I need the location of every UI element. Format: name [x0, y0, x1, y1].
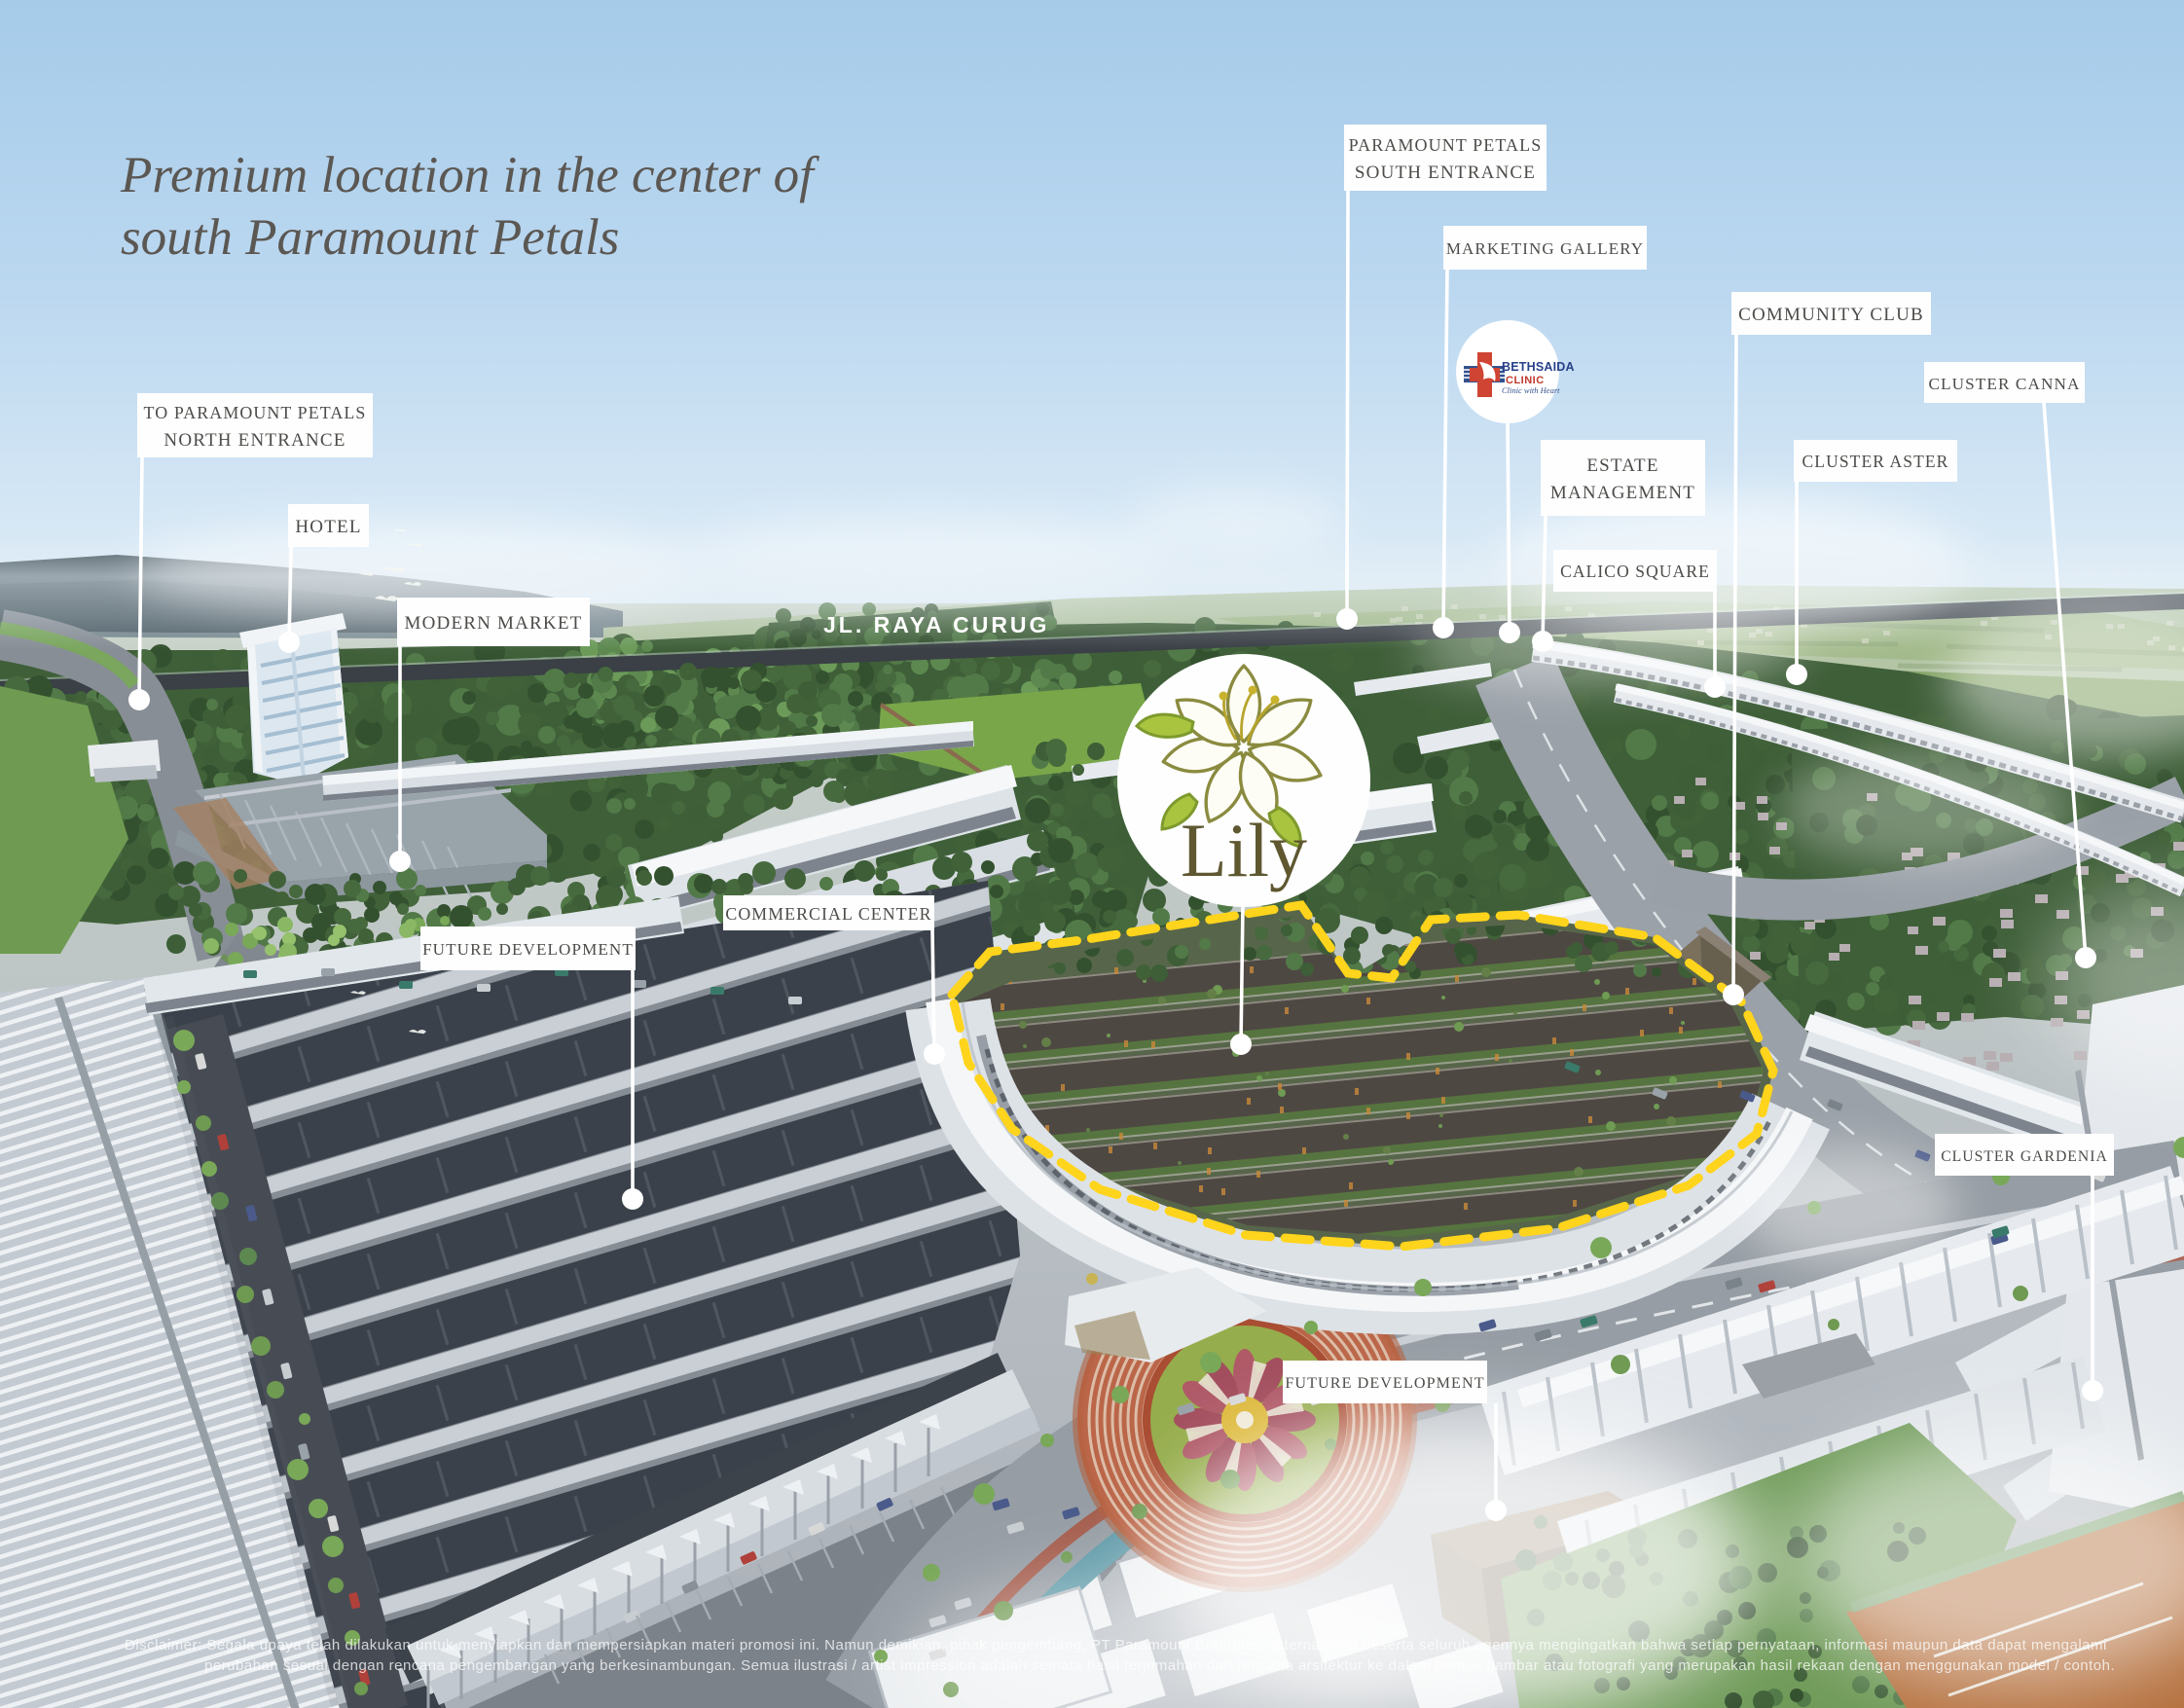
svg-text:ESTATE: ESTATE	[1586, 455, 1658, 476]
svg-text:CLUSTER CANNA: CLUSTER CANNA	[1928, 375, 2080, 393]
svg-text:CLUSTER GARDENIA: CLUSTER GARDENIA	[1941, 1148, 2108, 1165]
svg-text:Disclaimer: Segala upaya telah: Disclaimer: Segala upaya telah dilakukan…	[125, 1637, 2107, 1653]
svg-text:Clinic with Heart: Clinic with Heart	[1502, 385, 1560, 395]
svg-text:MARKETING GALLERY: MARKETING GALLERY	[1446, 239, 1644, 258]
svg-text:PARAMOUNT PETALS: PARAMOUNT PETALS	[1349, 135, 1543, 155]
svg-text:COMMUNITY CLUB: COMMUNITY CLUB	[1738, 305, 1924, 325]
svg-text:Premium location in the center: Premium location in the center of	[120, 147, 819, 203]
svg-text:Lily: Lily	[1181, 808, 1307, 892]
svg-text:NORTH ENTRANCE: NORTH ENTRANCE	[164, 430, 346, 451]
svg-text:CALICO SQUARE: CALICO SQUARE	[1560, 562, 1710, 581]
svg-text:FUTURE DEVELOPMENT: FUTURE DEVELOPMENT	[1285, 1375, 1484, 1392]
svg-text:JL. RAYA CURUG: JL. RAYA CURUG	[823, 612, 1049, 637]
svg-text:MANAGEMENT: MANAGEMENT	[1550, 483, 1695, 503]
svg-text:MODERN MARKET: MODERN MARKET	[405, 613, 583, 634]
svg-text:TO PARAMOUNT PETALS: TO PARAMOUNT PETALS	[144, 403, 367, 422]
svg-text:perubahan sesuai dengan rencan: perubahan sesuai dengan rencana pengemba…	[204, 1657, 2115, 1674]
svg-text:COMMERCIAL CENTER: COMMERCIAL CENTER	[725, 904, 931, 924]
svg-text:CLUSTER ASTER: CLUSTER ASTER	[1802, 452, 1949, 471]
svg-text:SOUTH ENTRANCE: SOUTH ENTRANCE	[1355, 163, 1536, 183]
svg-text:HOTEL: HOTEL	[295, 517, 361, 537]
svg-text:BETHSAIDA: BETHSAIDA	[1502, 360, 1575, 374]
svg-text:south Paramount Petals: south Paramount Petals	[121, 209, 619, 266]
svg-text:FUTURE DEVELOPMENT: FUTURE DEVELOPMENT	[422, 940, 634, 959]
